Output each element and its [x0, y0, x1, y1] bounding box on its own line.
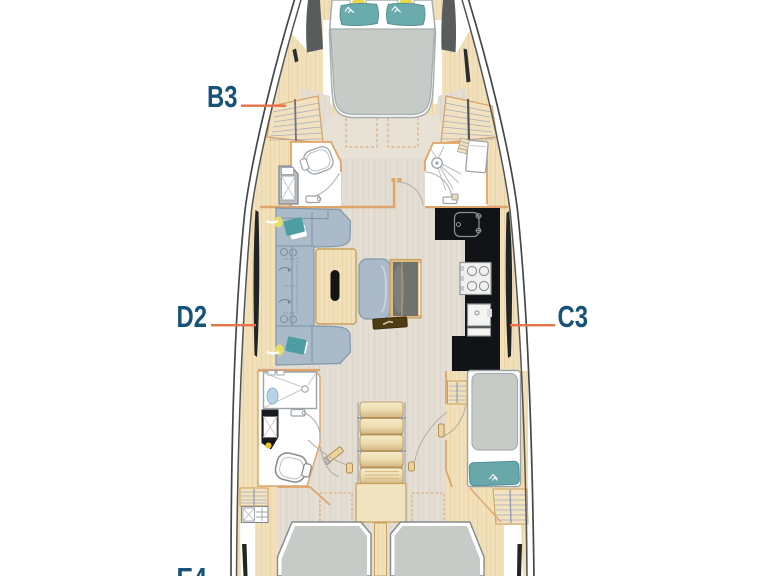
- svg-text:D2: D2: [177, 299, 208, 334]
- svg-text:C3: C3: [558, 299, 589, 334]
- svg-text:E4: E4: [177, 561, 208, 576]
- svg-text:B3: B3: [207, 79, 238, 114]
